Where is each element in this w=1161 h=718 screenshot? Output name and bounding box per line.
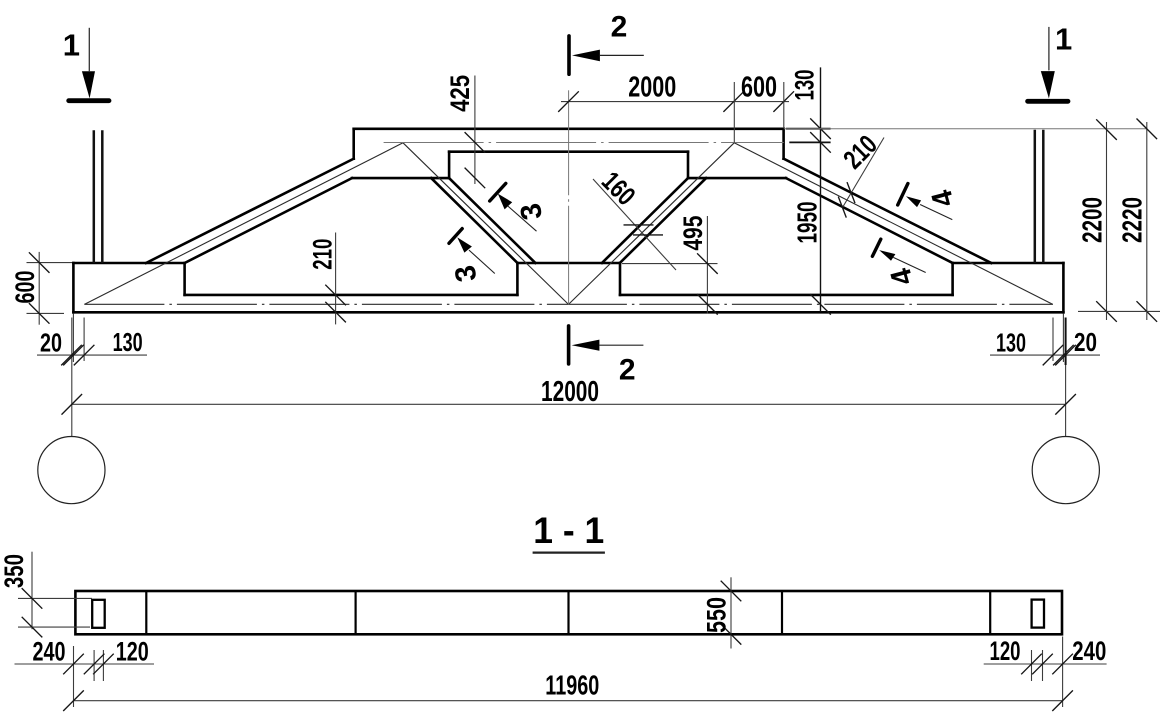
svg-text:2200: 2200	[1076, 197, 1107, 243]
svg-text:1950: 1950	[792, 202, 823, 244]
svg-text:20: 20	[40, 327, 62, 357]
svg-text:130: 130	[789, 70, 819, 101]
svg-text:1: 1	[1055, 22, 1072, 57]
svg-text:130: 130	[113, 327, 143, 357]
svg-text:11960: 11960	[545, 670, 599, 701]
svg-text:2000: 2000	[628, 72, 676, 104]
svg-text:495: 495	[678, 216, 708, 251]
svg-text:425: 425	[445, 75, 475, 112]
svg-text:2220: 2220	[1117, 197, 1148, 243]
svg-text:240: 240	[1072, 636, 1106, 666]
svg-text:550: 550	[702, 597, 732, 633]
svg-text:210: 210	[308, 239, 338, 270]
svg-text:240: 240	[33, 637, 66, 667]
svg-text:2: 2	[611, 11, 628, 44]
svg-text:120: 120	[990, 636, 1021, 666]
svg-text:130: 130	[996, 327, 1026, 357]
svg-text:350: 350	[0, 554, 29, 588]
svg-text:20: 20	[1074, 327, 1097, 357]
svg-text:120: 120	[116, 637, 149, 667]
svg-text:2: 2	[619, 353, 636, 386]
svg-text:12000: 12000	[541, 376, 599, 408]
svg-text:1 - 1: 1 - 1	[533, 510, 604, 551]
svg-text:1: 1	[63, 27, 80, 62]
svg-text:600: 600	[10, 271, 40, 304]
svg-text:600: 600	[741, 72, 777, 104]
